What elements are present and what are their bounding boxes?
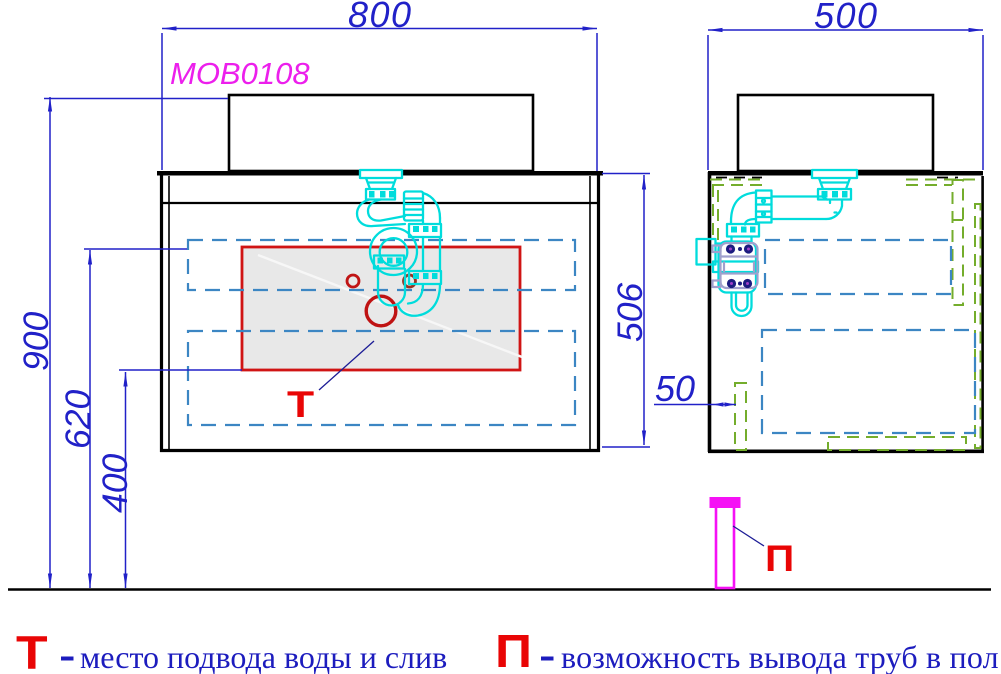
svg-text:900: 900 <box>16 312 56 371</box>
svg-text:П: П <box>495 626 532 674</box>
svg-text:место подвода воды и слив: место подвода воды и слив <box>80 639 447 674</box>
svg-text:Т: Т <box>287 384 314 426</box>
svg-text:800: 800 <box>348 0 413 35</box>
svg-text:400: 400 <box>95 454 135 513</box>
svg-text:MOB0108: MOB0108 <box>170 56 310 91</box>
svg-text:Т: Т <box>16 627 48 674</box>
svg-text:620: 620 <box>58 390 98 449</box>
svg-text:506: 506 <box>610 283 650 342</box>
svg-text:500: 500 <box>814 0 879 36</box>
svg-text:П: П <box>765 539 794 580</box>
svg-text:возможность вывода труб в пол: возможность вывода труб в пол <box>561 639 999 674</box>
svg-text:50: 50 <box>655 368 695 409</box>
